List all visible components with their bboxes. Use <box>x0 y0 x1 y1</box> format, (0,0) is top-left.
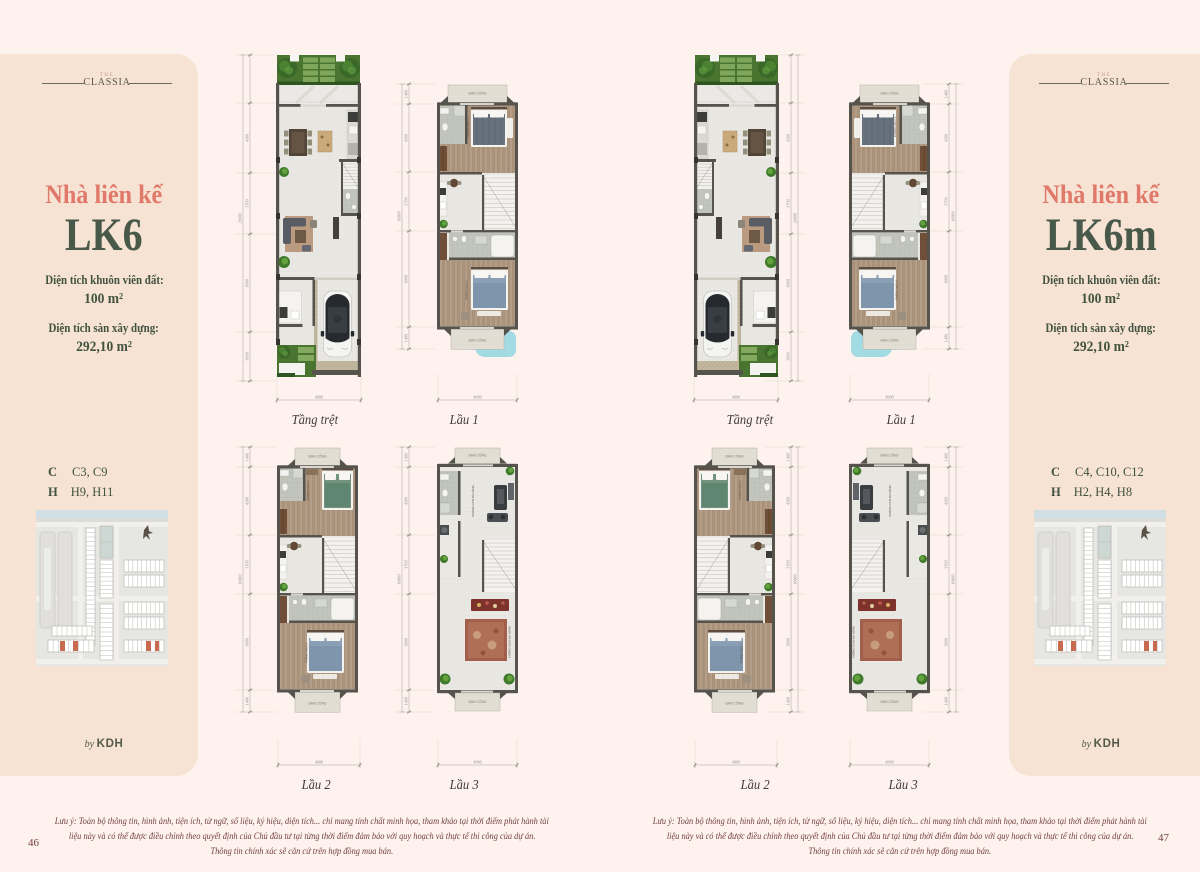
svg-text:16800: 16800 <box>396 211 401 221</box>
svg-text:PHÒNG NGỦ 1: PHÒNG NGỦ 1 <box>305 479 310 500</box>
svg-text:16800: 16800 <box>950 211 955 221</box>
svg-text:1400: 1400 <box>403 697 408 705</box>
svg-text:4980: 4980 <box>473 395 481 400</box>
svg-text:3700: 3700 <box>785 560 790 568</box>
svg-text:3000: 3000 <box>785 352 790 360</box>
svg-text:3700: 3700 <box>244 560 249 568</box>
svg-text:PHÒNG NGỦ 2: PHÒNG NGỦ 2 <box>464 279 469 300</box>
svg-text:BAN CÔNG: BAN CÔNG <box>468 338 486 343</box>
svg-text:1400: 1400 <box>943 334 948 342</box>
svg-text:1400: 1400 <box>403 453 408 461</box>
svg-text:16800: 16800 <box>792 574 797 584</box>
svg-text:16800: 16800 <box>237 574 242 584</box>
svg-text:1400: 1400 <box>943 90 948 98</box>
svg-text:4980: 4980 <box>473 760 481 765</box>
svg-text:4300: 4300 <box>244 497 249 505</box>
svg-text:6000: 6000 <box>943 275 948 283</box>
svg-text:20000: 20000 <box>792 213 797 223</box>
svg-text:KHÔNG GIAN ĐA NĂNG: KHÔNG GIAN ĐA NĂNG <box>851 625 856 658</box>
svg-text:BAN CÔNG: BAN CÔNG <box>468 91 486 96</box>
svg-text:BAN CÔNG: BAN CÔNG <box>725 701 743 706</box>
svg-text:3000: 3000 <box>244 352 249 360</box>
svg-text:6000: 6000 <box>403 275 408 283</box>
svg-text:4300: 4300 <box>785 134 790 142</box>
svg-text:3700: 3700 <box>403 197 408 205</box>
svg-text:PHÒNG GYM ĐA NĂNG: PHÒNG GYM ĐA NĂNG <box>887 484 892 517</box>
svg-text:PHÒNG NGỦ 2: PHÒNG NGỦ 2 <box>894 279 899 300</box>
svg-text:BAN CÔNG: BAN CÔNG <box>880 453 898 458</box>
svg-text:BAN CÔNG: BAN CÔNG <box>308 701 326 706</box>
svg-text:4980: 4980 <box>315 760 323 765</box>
svg-text:4300: 4300 <box>943 497 948 505</box>
svg-text:4300: 4300 <box>244 134 249 142</box>
svg-text:1400: 1400 <box>785 453 790 461</box>
svg-text:4980: 4980 <box>732 395 740 400</box>
svg-text:1400: 1400 <box>403 90 408 98</box>
svg-text:PHÒNG NGỦ 1: PHÒNG NGỦ 1 <box>465 116 470 137</box>
svg-text:1400: 1400 <box>403 334 408 342</box>
svg-text:BAN CÔNG: BAN CÔNG <box>880 699 898 704</box>
svg-text:6000: 6000 <box>244 279 249 287</box>
svg-text:6000: 6000 <box>403 638 408 646</box>
svg-text:4300: 4300 <box>403 497 408 505</box>
svg-text:PHÒNG NGỦ 1: PHÒNG NGỦ 1 <box>892 116 897 137</box>
svg-text:16800: 16800 <box>396 574 401 584</box>
svg-text:BAN CÔNG: BAN CÔNG <box>880 338 898 343</box>
svg-text:1400: 1400 <box>244 453 249 461</box>
svg-text:4980: 4980 <box>732 760 740 765</box>
svg-text:16800: 16800 <box>950 574 955 584</box>
svg-text:BAN CÔNG: BAN CÔNG <box>725 454 743 459</box>
svg-text:4980: 4980 <box>315 395 323 400</box>
svg-text:3700: 3700 <box>943 197 948 205</box>
svg-text:6000: 6000 <box>943 638 948 646</box>
svg-text:PHÒNG NGỦ 1: PHÒNG NGỦ 1 <box>737 479 742 500</box>
svg-text:3700: 3700 <box>403 560 408 568</box>
svg-text:4980: 4980 <box>885 760 893 765</box>
svg-text:1400: 1400 <box>244 697 249 705</box>
svg-text:6000: 6000 <box>785 638 790 646</box>
svg-text:4300: 4300 <box>943 134 948 142</box>
svg-text:BAN CÔNG: BAN CÔNG <box>308 454 326 459</box>
svg-text:1400: 1400 <box>943 697 948 705</box>
svg-text:PHÒNG GYM ĐA NĂNG: PHÒNG GYM ĐA NĂNG <box>470 484 475 517</box>
svg-text:BAN CÔNG: BAN CÔNG <box>468 453 486 458</box>
svg-text:3700: 3700 <box>943 560 948 568</box>
svg-text:BAN CÔNG: BAN CÔNG <box>468 699 486 704</box>
svg-text:4300: 4300 <box>403 134 408 142</box>
svg-text:3700: 3700 <box>785 199 790 207</box>
svg-text:KHÔNG GIAN ĐA NĂNG: KHÔNG GIAN ĐA NĂNG <box>507 625 512 658</box>
svg-text:6000: 6000 <box>785 279 790 287</box>
svg-text:PHÒNG NGỦ 2: PHÒNG NGỦ 2 <box>739 642 744 663</box>
svg-text:6000: 6000 <box>244 638 249 646</box>
svg-text:4300: 4300 <box>785 497 790 505</box>
svg-text:1400: 1400 <box>785 697 790 705</box>
svg-text:3700: 3700 <box>244 199 249 207</box>
svg-text:1400: 1400 <box>943 453 948 461</box>
svg-text:BAN CÔNG: BAN CÔNG <box>880 91 898 96</box>
svg-text:20000: 20000 <box>237 213 242 223</box>
svg-text:PHÒNG NGỦ 2: PHÒNG NGỦ 2 <box>304 642 309 663</box>
svg-text:4980: 4980 <box>885 395 893 400</box>
